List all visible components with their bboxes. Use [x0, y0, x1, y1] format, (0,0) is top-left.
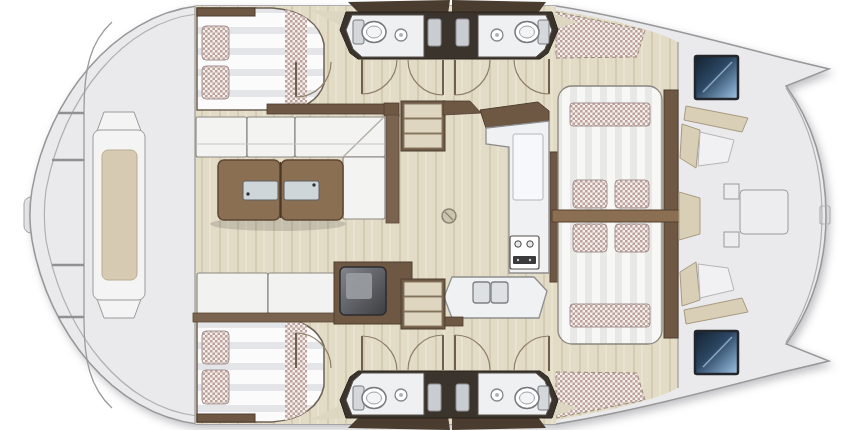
sunpad-bolster-top — [570, 103, 650, 126]
lounge-table-bar — [552, 210, 682, 222]
sofa-chaise-cushion — [343, 157, 385, 219]
lower-companionway-stairs — [401, 279, 445, 329]
lower-basin-right-drain — [495, 393, 499, 397]
table-handle-right — [312, 183, 315, 186]
sofa-cushion-3 — [295, 117, 385, 157]
bow-pod-top-cap — [97, 112, 141, 131]
lower-shower-tray-right — [456, 384, 469, 411]
lower-basin-left-drain — [399, 393, 403, 397]
stove-control-bar — [513, 256, 536, 264]
lower-berth-pillow-2 — [202, 370, 229, 404]
bench-base-strip — [193, 313, 340, 322]
stern-cushion-center — [679, 192, 700, 240]
upper-stair-tread-1 — [404, 104, 442, 118]
stern-step-lower — [724, 232, 739, 247]
upper-headboard-shelf — [197, 8, 255, 16]
table-handle-left — [246, 192, 249, 195]
bench-cushion-1 — [197, 273, 268, 314]
upper-shower-tray-right — [456, 19, 469, 46]
refrigerator-lid — [346, 273, 372, 299]
upper-berth-pillow-1 — [202, 26, 229, 60]
stove-knob-1 — [517, 259, 519, 261]
stove-burner-1 — [515, 241, 521, 247]
lounge-pillow-3 — [573, 224, 607, 252]
upper-toilet-left-seat — [367, 26, 382, 38]
lower-toilet-right-seat — [520, 392, 535, 404]
upper-stair-tread-3 — [404, 134, 442, 148]
lounge-pillow-2 — [615, 180, 649, 208]
lower-berth-pillow-1 — [202, 331, 229, 364]
upper-stair-tread-2 — [404, 119, 442, 133]
sofa-side-plank — [386, 115, 399, 223]
sunpad-bolster-bottom — [570, 304, 650, 327]
bench-cushion-2 — [268, 273, 337, 314]
upper-shower-tray-left — [428, 19, 441, 46]
stove-burner-2 — [527, 241, 533, 247]
upper-basin-left-drain — [399, 33, 403, 37]
upper-cabin — [197, 8, 324, 110]
sofa-cushion-1 — [196, 117, 247, 157]
salon-bulkhead-strip — [267, 104, 398, 114]
bow-pod-cushion — [102, 150, 137, 280]
lounge-pillow-1 — [573, 180, 607, 208]
lower-toilet-left-seat — [367, 392, 382, 404]
bow-pod-bottom-cap — [97, 299, 141, 318]
lower-stair-tread-2 — [404, 297, 442, 311]
stern-center-platform — [740, 190, 788, 234]
lower-cabin — [197, 320, 324, 422]
galley-worktop-outline — [513, 134, 543, 200]
sofa-cushion-2 — [247, 117, 295, 157]
lower-stair-tread-1 — [404, 282, 442, 296]
table-inset-tray-left — [243, 181, 278, 200]
sofa-side-cabinet-top — [384, 103, 399, 116]
lower-headboard-shelf — [197, 414, 255, 422]
sink-basin-right — [491, 282, 508, 303]
sink-basin-left — [473, 282, 490, 303]
upper-berth-pillow-2 — [202, 66, 229, 99]
stern-step-upper — [724, 184, 739, 199]
aft-lounge — [550, 86, 682, 344]
lower-shower-tray-left — [428, 384, 441, 411]
upper-toilet-right-seat — [520, 26, 535, 38]
upper-basin-right-drain — [495, 33, 499, 37]
catamaran-floor-plan — [0, 0, 859, 430]
stove-knob-2 — [529, 259, 531, 261]
lounge-pillow-4 — [615, 224, 649, 252]
salon — [193, 103, 412, 324]
stove-panel — [510, 236, 539, 269]
floor-plan-canvas — [0, 0, 859, 430]
lower-stair-tread-3 — [404, 312, 442, 326]
